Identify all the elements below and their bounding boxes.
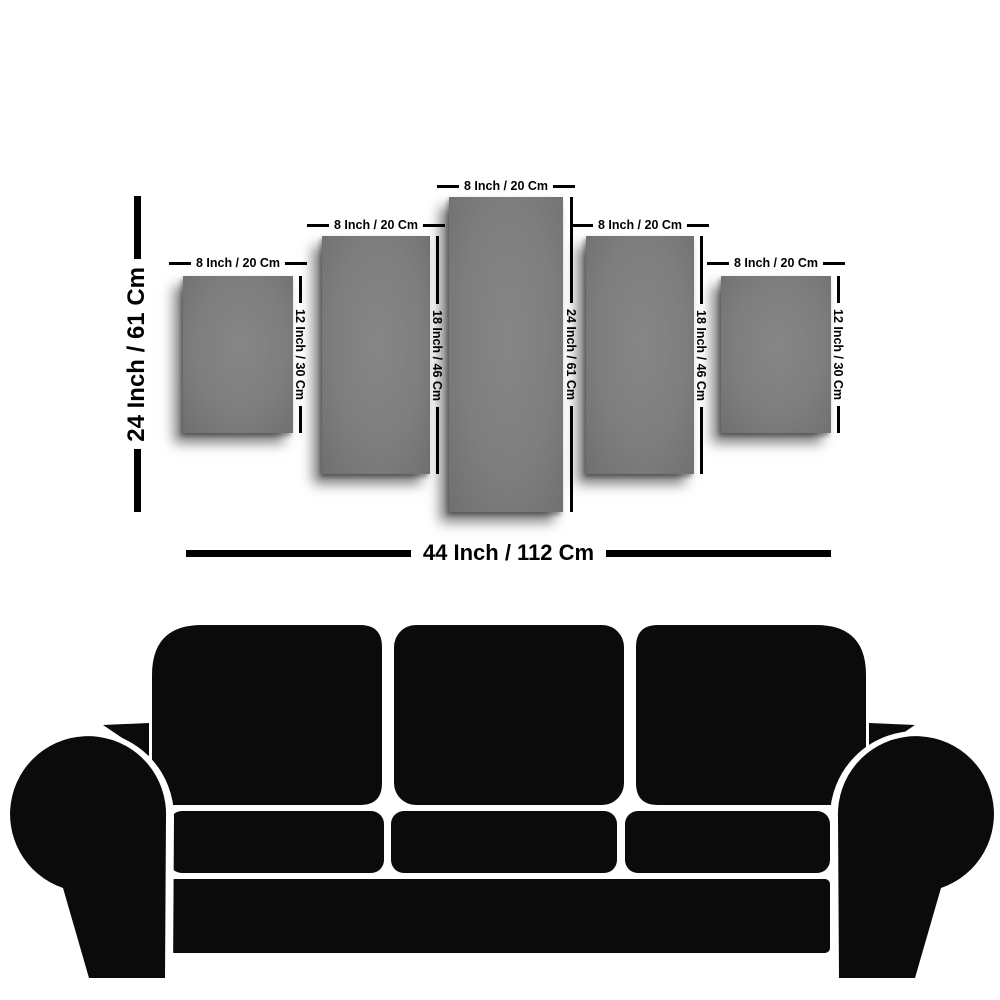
canvas-panel-1 <box>183 276 293 433</box>
size-guide-diagram: 24 Inch / 61 Cm 8 Inch / 20 Cm 12 Inch /… <box>0 0 1000 1000</box>
sofa-silhouette-icon <box>0 600 1000 1000</box>
dimension-line <box>436 236 439 304</box>
dimension-line <box>299 276 302 303</box>
sofa-armrest <box>10 736 166 978</box>
dimension-line <box>436 407 439 475</box>
panel-3-height-dimension: 24 Inch / 61 Cm <box>564 197 578 512</box>
panel-2-height-label: 18 Inch / 46 Cm <box>430 304 444 407</box>
dimension-line <box>437 185 459 188</box>
dimension-line <box>823 262 845 265</box>
dimension-line <box>299 406 302 433</box>
dimension-line <box>570 197 573 303</box>
panel-3-width-label: 8 Inch / 20 Cm <box>464 179 548 193</box>
panel-4-height-label: 18 Inch / 46 Cm <box>694 304 708 407</box>
panel-4-height-dimension: 18 Inch / 46 Cm <box>694 236 708 474</box>
panel-1-width-label: 8 Inch / 20 Cm <box>196 256 280 270</box>
canvas-panel-5 <box>721 276 831 433</box>
dimension-line <box>687 224 709 227</box>
sofa-seat-cushion <box>391 811 617 873</box>
panel-1-height-label: 12 Inch / 30 Cm <box>293 303 307 406</box>
dimension-line <box>606 550 831 557</box>
dimension-line <box>285 262 307 265</box>
dimension-line <box>837 406 840 433</box>
dimension-line <box>837 276 840 303</box>
dimension-line <box>307 224 329 227</box>
panel-5-height-dimension: 12 Inch / 30 Cm <box>831 276 845 433</box>
overall-height-label: 24 Inch / 61 Cm <box>123 259 151 450</box>
dimension-line <box>169 262 191 265</box>
panel-5-height-label: 12 Inch / 30 Cm <box>831 303 845 406</box>
panel-5-width-label: 8 Inch / 20 Cm <box>734 256 818 270</box>
panel-2-width-dimension: 8 Inch / 20 Cm <box>307 217 445 233</box>
panel-2-width-label: 8 Inch / 20 Cm <box>334 218 418 232</box>
dimension-line <box>553 185 575 188</box>
panel-4-width-label: 8 Inch / 20 Cm <box>598 218 682 232</box>
sofa-back-cushion <box>636 625 866 805</box>
sofa-back-cushion <box>152 625 382 805</box>
dimension-line <box>423 224 445 227</box>
panel-5-width-dimension: 8 Inch / 20 Cm <box>707 255 845 271</box>
sofa-armrest <box>838 736 994 978</box>
sofa-back-cushion <box>394 625 624 805</box>
dimension-line <box>570 406 573 512</box>
overall-width-dimension: 44 Inch / 112 Cm <box>186 541 831 565</box>
sofa-base <box>169 879 830 953</box>
panel-3-width-dimension: 8 Inch / 20 Cm <box>437 178 575 194</box>
overall-width-label: 44 Inch / 112 Cm <box>423 540 594 566</box>
panel-2-height-dimension: 18 Inch / 46 Cm <box>430 236 444 474</box>
overall-height-dimension: 24 Inch / 61 Cm <box>123 196 151 512</box>
panel-1-width-dimension: 8 Inch / 20 Cm <box>169 255 307 271</box>
sofa-seat-cushion <box>625 811 830 873</box>
dimension-line <box>700 236 703 304</box>
dimension-line <box>707 262 729 265</box>
sofa-seat-cushion <box>169 811 384 873</box>
dimension-line <box>700 407 703 475</box>
canvas-panel-2 <box>322 236 430 474</box>
panel-1-height-dimension: 12 Inch / 30 Cm <box>293 276 307 433</box>
dimension-line <box>134 449 141 512</box>
dimension-line <box>134 196 141 259</box>
dimension-line <box>186 550 411 557</box>
panel-4-width-dimension: 8 Inch / 20 Cm <box>571 217 709 233</box>
dimension-line <box>571 224 593 227</box>
canvas-panel-4 <box>586 236 694 474</box>
panel-3-height-label: 24 Inch / 61 Cm <box>564 303 578 406</box>
canvas-panel-3 <box>449 197 563 512</box>
